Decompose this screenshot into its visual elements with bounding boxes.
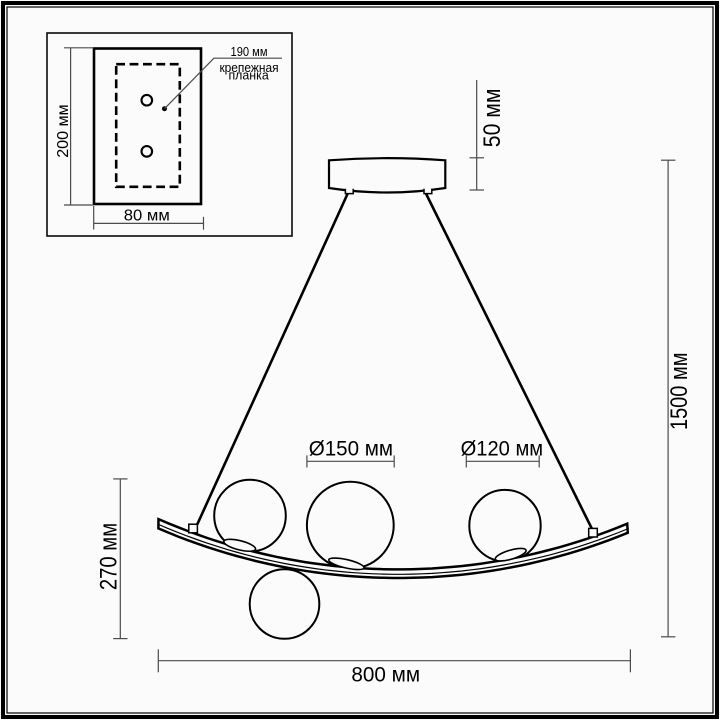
svg-text:Ø120 мм: Ø120 мм: [461, 438, 544, 461]
svg-text:80 мм: 80 мм: [124, 208, 170, 225]
svg-text:50 мм: 50 мм: [479, 89, 506, 148]
svg-text:Ø150 мм: Ø150 мм: [309, 438, 393, 461]
svg-text:планка: планка: [228, 68, 269, 83]
svg-text:200 мм: 200 мм: [55, 104, 72, 157]
svg-text:190 мм: 190 мм: [231, 44, 268, 59]
svg-text:800 мм: 800 мм: [351, 664, 420, 687]
svg-text:270 мм: 270 мм: [96, 523, 123, 590]
svg-text:1500 мм: 1500 мм: [666, 353, 693, 431]
